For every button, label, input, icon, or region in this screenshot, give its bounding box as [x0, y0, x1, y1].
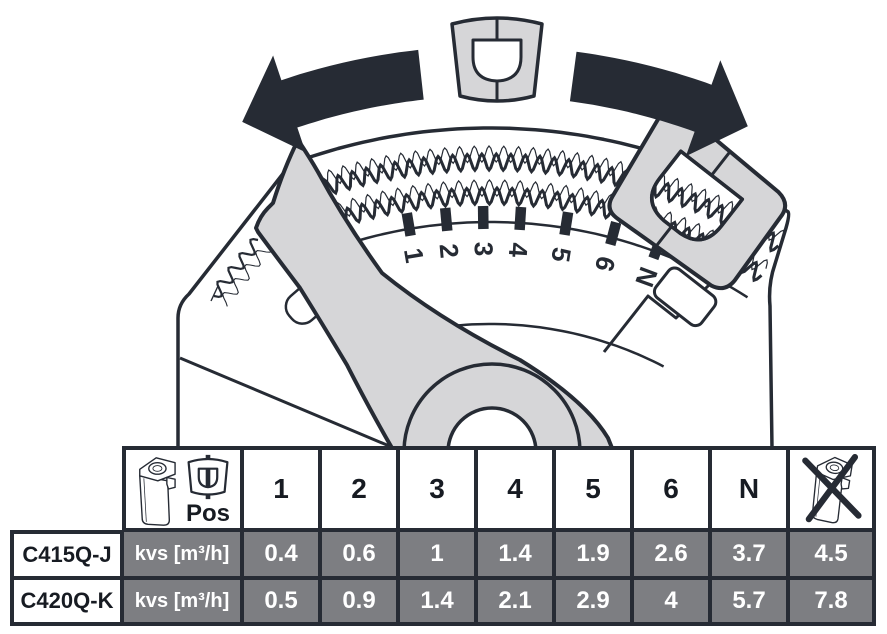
kvs-value: 0.6	[320, 530, 398, 578]
adjustment-tool-top-icon	[452, 17, 542, 101]
pos-header-1: 1	[242, 446, 320, 530]
dial-tick	[565, 212, 569, 235]
model-label: C415Q-J	[10, 530, 122, 578]
kvs-value: 0.5	[242, 578, 320, 626]
kvs-table: Pos 1 2 3 4 5 6 N C415Q-J kvs [m³/h] 0.4…	[10, 446, 876, 626]
model-label: C420Q-K	[10, 578, 122, 626]
unit-label: kvs [m³/h]	[122, 578, 242, 626]
cartridge-icon	[134, 451, 180, 527]
dial-position-label: 2	[434, 242, 465, 259]
kvs-value: 1.9	[554, 530, 632, 578]
valve-adjustment-illustration: 123456N	[0, 0, 887, 450]
dial-position-label: 4	[503, 242, 534, 259]
unit-label: kvs [m³/h]	[122, 530, 242, 578]
kvs-value: 1.4	[398, 578, 476, 626]
kvs-value: 1.4	[476, 530, 554, 578]
pos-header-5: 5	[554, 446, 632, 530]
no-cartridge-header-cell	[788, 446, 876, 530]
pos-header-n: N	[710, 446, 788, 530]
pos-header-6: 6	[632, 446, 710, 530]
pos-header-cell: Pos	[122, 446, 242, 530]
pos-header-2: 2	[320, 446, 398, 530]
kvs-value: 4	[632, 578, 710, 626]
kvs-value: 0.4	[242, 530, 320, 578]
dial-position-label: 3	[469, 242, 499, 257]
kvs-value: 2.6	[632, 530, 710, 578]
kvs-value: 7.8	[788, 578, 876, 626]
table-corner-blank	[10, 446, 122, 530]
page: 123456N	[0, 0, 887, 634]
pos-header-3: 3	[398, 446, 476, 530]
pos-header-4: 4	[476, 446, 554, 530]
dial-tick	[520, 207, 521, 230]
kvs-value: 1	[398, 530, 476, 578]
dial-tick	[407, 213, 411, 236]
kvs-value: 2.9	[554, 578, 632, 626]
kvs-value: 2.1	[476, 578, 554, 626]
kvs-value: 0.9	[320, 578, 398, 626]
no-cartridge-icon	[796, 450, 866, 528]
adjustment-tool-icon	[184, 453, 232, 501]
kvs-value: 3.7	[710, 530, 788, 578]
kvs-value: 5.7	[710, 578, 788, 626]
kvs-value: 4.5	[788, 530, 876, 578]
dial-tick	[445, 208, 447, 231]
dial-tick	[610, 222, 616, 244]
pos-label: Pos	[186, 502, 230, 526]
